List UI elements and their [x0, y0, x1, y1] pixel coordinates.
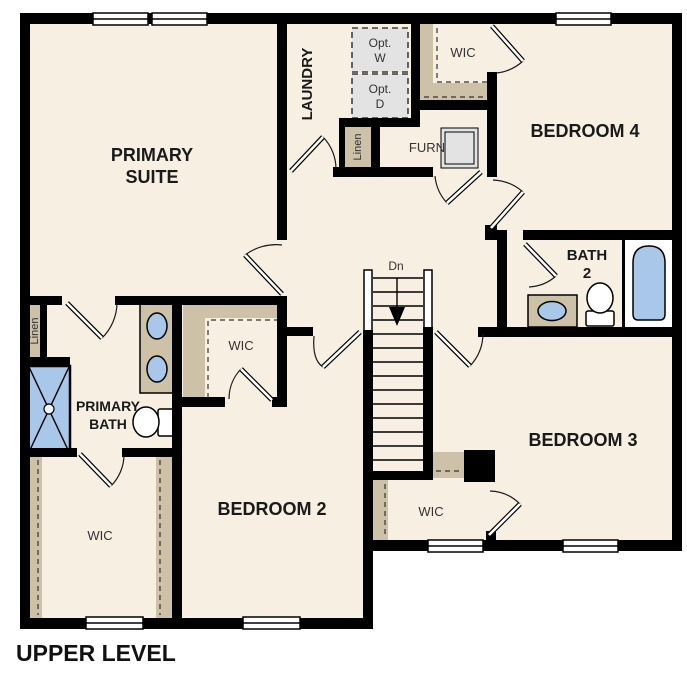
opt-dryer-label-line1: Opt.: [369, 82, 392, 96]
bedroom4-label: BEDROOM 4: [530, 121, 639, 141]
shower-drain: [44, 404, 54, 414]
wall-wic-bedroom2-top-b: [122, 448, 180, 457]
wic-primary-label: WIC: [228, 338, 253, 353]
wall-bath2-bottom: [478, 327, 682, 337]
opt-washer-box: [352, 28, 408, 72]
primary-bath-label-line1: PRIMARY: [76, 398, 141, 414]
plan-title: UPPER LEVEL: [16, 640, 176, 666]
wall-bath2-left: [497, 240, 507, 337]
opt-dryer-box: [352, 74, 408, 118]
wic-bedroom2-label: WIC: [87, 528, 112, 543]
stair-closet-shelf: [433, 452, 464, 478]
wall-wic-bedroom4-bottom: [420, 100, 497, 110]
opt-washer-label-line1: Opt.: [369, 36, 392, 50]
bedroom2-label: BEDROOM 2: [217, 499, 326, 519]
primary-toilet-tank: [158, 409, 174, 436]
wall-bedroom2-top: [277, 327, 313, 336]
wall-wic-bedroom2-top-a: [20, 448, 77, 457]
bath2-label-line2: 2: [583, 265, 591, 282]
bedroom3-label: BEDROOM 3: [528, 430, 637, 450]
wall-linen-primary-right: [40, 296, 47, 366]
primary-bath-label-line2: BATH: [89, 416, 127, 432]
wic-bedroom4-shelf-bottom: [420, 83, 497, 102]
linen-primary-label: Linen: [29, 318, 41, 345]
wall-linen-primary-bottom: [20, 357, 70, 366]
floorplan-canvas: PRIMARY SUITE LAUNDRY BEDROOM 4 BATH 2 B…: [0, 0, 687, 687]
primary-suite-label-line1: PRIMARY: [111, 145, 193, 165]
stairs-dn-label: Dn: [388, 259, 403, 273]
primary-suite-label-line2: SUITE: [125, 167, 178, 187]
wall-wic-primary-bottom-b: [272, 397, 287, 407]
opt-dryer-label-line2: D: [376, 97, 385, 111]
bath2-sink: [538, 302, 566, 321]
primary-sink-2: [147, 356, 167, 382]
bath2-toilet-bowl: [587, 283, 613, 313]
furnace-label: FURN: [409, 140, 445, 155]
wall-stairs-bottom: [363, 471, 433, 480]
wall-laundry-right: [411, 13, 420, 118]
opt-washer-label-line2: W: [374, 51, 386, 65]
floorplan-upper-level: PRIMARY SUITE LAUNDRY BEDROOM 4 BATH 2 B…: [0, 0, 687, 687]
wall-furnace-right: [487, 72, 497, 177]
chase-block: [464, 450, 495, 482]
linen-hall-label: Linen: [352, 134, 364, 161]
furnace-box: [441, 128, 478, 168]
wic-bedroom2-shelf-right: [156, 457, 172, 618]
wic-bedroom2-shelf-left: [30, 457, 42, 618]
wall-bedroom4-bottom-a: [485, 230, 507, 240]
bath2-label-line1: BATH: [567, 247, 608, 264]
stair-railing-left: [364, 270, 372, 332]
wall-bedroom4-bottom-b: [523, 230, 682, 240]
wall-wic-primary-bottom-a: [180, 397, 225, 407]
wall-exterior-bottom-right: [363, 540, 682, 551]
primary-sink-1: [147, 313, 167, 339]
wall-laundry-left: [277, 13, 287, 240]
wall-stairs-right: [423, 327, 433, 480]
wall-exterior-right: [672, 13, 682, 551]
wall-bedroom2-left: [172, 297, 182, 629]
wic-bedroom3-label: WIC: [418, 504, 443, 519]
wic-primary-interior: [205, 318, 277, 400]
wic-bedroom3-shelf-left: [373, 480, 388, 540]
wall-tub-partition: [622, 240, 625, 327]
stair-railing-right: [424, 270, 432, 332]
laundry-label: LAUNDRY: [299, 48, 316, 121]
wall-exterior-bottom-left: [20, 618, 373, 629]
wic-bedroom4-label: WIC: [450, 45, 475, 60]
wall-wic-primary-right: [277, 296, 287, 407]
wall-suite-bottom-b: [115, 296, 277, 305]
wall-laundry-bottom: [333, 167, 433, 177]
bathtub: [633, 246, 665, 320]
